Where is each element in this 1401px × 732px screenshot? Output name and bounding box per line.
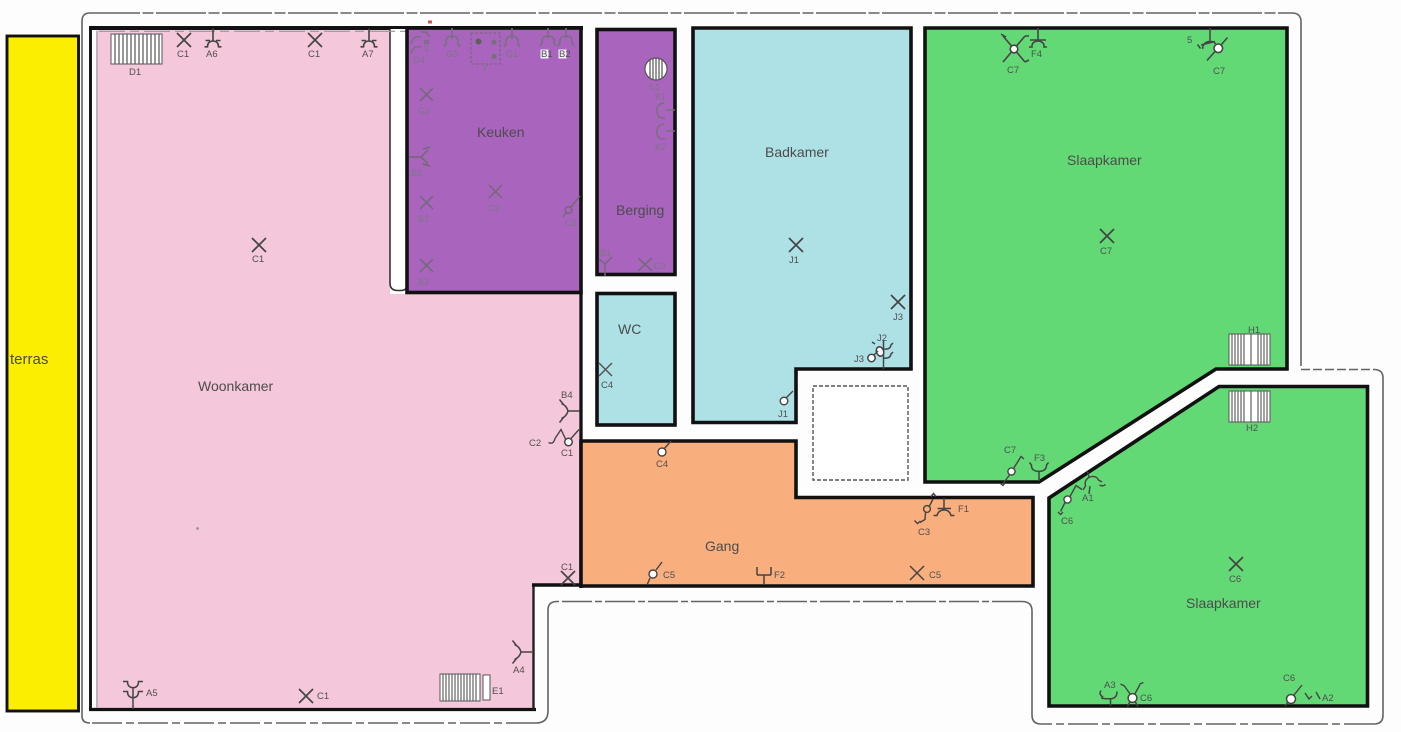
svg-text:A1: A1 (1082, 493, 1094, 504)
svg-text:B3: B3 (411, 168, 422, 178)
svg-text:C6: C6 (1140, 693, 1152, 704)
svg-text:A4: A4 (513, 665, 525, 676)
svg-text:C7: C7 (1007, 65, 1019, 76)
svg-text:B4: B4 (561, 390, 573, 401)
svg-text:J1: J1 (789, 255, 799, 266)
svg-text:C1: C1 (177, 49, 189, 60)
svg-text:J3: J3 (854, 354, 864, 365)
svg-text:E1: E1 (492, 686, 504, 697)
svg-text:C5: C5 (929, 570, 941, 581)
svg-text:Berging: Berging (616, 202, 664, 218)
svg-text:C1: C1 (561, 562, 573, 573)
svg-text:C7: C7 (1213, 66, 1225, 77)
svg-text:A7: A7 (362, 49, 374, 60)
svg-text:2: 2 (424, 44, 429, 54)
svg-text:C3: C3 (654, 261, 666, 271)
svg-text:terras: terras (10, 351, 48, 368)
svg-text:A2: A2 (1322, 693, 1334, 704)
svg-text:B2: B2 (559, 49, 571, 60)
svg-text:C5: C5 (565, 218, 577, 228)
svg-text:C2: C2 (529, 438, 541, 449)
svg-text:B3: B3 (418, 277, 429, 287)
svg-text:B1: B1 (600, 248, 611, 258)
svg-text:A6: A6 (206, 49, 218, 60)
svg-text:C3: C3 (918, 527, 930, 538)
svg-text:B3: B3 (418, 214, 429, 224)
svg-text:G1: G1 (506, 49, 518, 59)
svg-text:H1: H1 (1248, 325, 1260, 336)
svg-text:Woonkamer: Woonkamer (198, 378, 274, 394)
svg-text:C7: C7 (1100, 246, 1112, 257)
svg-text:F: F (483, 64, 489, 74)
svg-text:Gang: Gang (705, 538, 739, 554)
svg-text:G3: G3 (446, 49, 458, 59)
svg-text:C1: C1 (308, 49, 320, 60)
svg-text:K2: K2 (655, 142, 666, 152)
svg-text:L1: L1 (650, 82, 660, 92)
svg-text:F1: F1 (958, 504, 969, 515)
svg-text:C5: C5 (663, 570, 675, 581)
svg-text:G2: G2 (418, 106, 430, 116)
svg-text:C1: C1 (252, 254, 264, 265)
svg-text:C6: C6 (1283, 673, 1295, 684)
svg-text:G4: G4 (413, 55, 425, 65)
svg-text:A3: A3 (1104, 680, 1116, 691)
svg-text:5: 5 (1187, 35, 1192, 46)
svg-text:H2: H2 (1246, 423, 1258, 434)
svg-text:C4: C4 (656, 459, 668, 470)
svg-text:C4: C4 (601, 380, 613, 391)
svg-text:Slaapkamer: Slaapkamer (1067, 152, 1142, 168)
svg-text:C2: C2 (488, 203, 500, 213)
svg-text:J3: J3 (893, 312, 903, 323)
svg-text:C1: C1 (317, 691, 329, 702)
svg-text:C1: C1 (561, 448, 573, 459)
svg-text:J2: J2 (877, 333, 887, 344)
svg-text:Slaapkamer: Slaapkamer (1186, 595, 1261, 611)
svg-text:Badkamer: Badkamer (765, 144, 829, 160)
svg-text:C6: C6 (1229, 574, 1241, 585)
svg-text:J1: J1 (778, 409, 788, 420)
svg-text:F4: F4 (1031, 49, 1042, 60)
svg-text:D1: D1 (129, 67, 141, 78)
svg-text:WC: WC (618, 321, 641, 337)
svg-text:C6: C6 (1061, 516, 1073, 527)
svg-text:B1: B1 (541, 49, 553, 60)
svg-text:A5: A5 (146, 688, 158, 699)
svg-text:F3: F3 (1034, 453, 1045, 464)
svg-text:C7: C7 (1004, 445, 1016, 456)
svg-text:K1: K1 (655, 92, 666, 102)
svg-text:Keuken: Keuken (477, 124, 524, 140)
svg-text:F2: F2 (774, 570, 785, 581)
